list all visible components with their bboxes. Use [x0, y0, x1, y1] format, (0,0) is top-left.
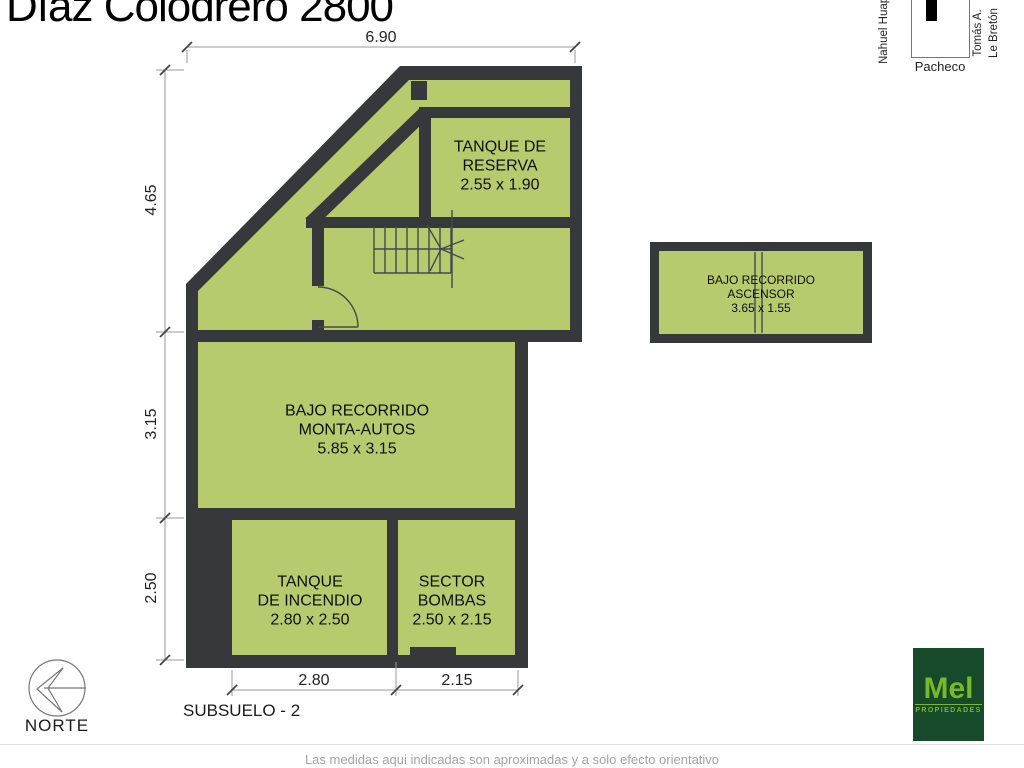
- column: [411, 81, 427, 100]
- room-name-line: RESERVA: [454, 157, 546, 176]
- room-size: 5.85 x 3.15: [285, 440, 429, 459]
- disclaimer-text: Las medidas aqui indicadas son aproximad…: [0, 744, 1024, 767]
- north-label: NORTE: [17, 716, 97, 736]
- door-stop-block: [312, 320, 324, 331]
- north-compass: [29, 660, 86, 716]
- reserva-left-wall: [419, 107, 431, 228]
- agency-logo: Mel PROPIEDADES: [913, 648, 984, 741]
- room-name-line: SECTOR: [412, 573, 491, 592]
- room-size: 2.55 x 1.90: [454, 176, 546, 195]
- room-size: 3.65 x 1.55: [707, 301, 815, 315]
- room-name-line: DE INCENDIO: [258, 592, 363, 611]
- dim-left-a: 4.65: [143, 160, 161, 240]
- bombas-step-notch: [410, 647, 456, 656]
- agency-logo-subtitle: PROPIEDADES: [915, 704, 981, 714]
- room-label-tanque-incendio: TANQUE DE INCENDIO 2.80 x 2.50: [258, 573, 363, 630]
- room-label-monta-autos: BAJO RECORRIDO MONTA-AUTOS 5.85 x 3.15: [285, 402, 429, 459]
- room-name-line: BAJO RECORRIDO: [285, 402, 429, 421]
- reserva-top-wall: [419, 107, 570, 118]
- dim-top: 6.90: [341, 29, 421, 47]
- room-name-line: TANQUE DE: [454, 138, 546, 157]
- stair-hall-wall: [306, 217, 570, 228]
- room-label-ascensor: BAJO RECORRIDO ASCENSOR 3.65 x 1.55: [707, 273, 815, 315]
- floor-level-label: SUBSUELO - 2: [183, 701, 300, 721]
- dim-bottom-b: 2.15: [417, 672, 497, 690]
- room-size: 2.80 x 2.50: [258, 611, 363, 630]
- room-name-line: BAJO RECORRIDO: [707, 273, 815, 287]
- north-arrow-icon: [37, 668, 63, 712]
- room-name-line: TANQUE: [258, 573, 363, 592]
- door-jamb-wall: [312, 217, 324, 286]
- room-label-tanque-reserva: TANQUE DE RESERVA 2.55 x 1.90: [454, 138, 546, 195]
- room-name-line: BOMBAS: [412, 592, 491, 611]
- room-name-line: MONTA-AUTOS: [285, 421, 429, 440]
- upper-zone: [186, 66, 582, 342]
- floorplan-page: Díaz Colodrero 2800 Nahuel Huap Tomás A.…: [0, 0, 1024, 768]
- dim-left-b: 3.15: [143, 384, 161, 464]
- agency-logo-name: Mel: [923, 675, 973, 703]
- room-label-sector-bombas: SECTOR BOMBAS 2.50 x 2.15: [412, 573, 491, 630]
- room-size: 2.50 x 2.15: [412, 611, 491, 630]
- dim-bottom-a: 2.80: [274, 672, 354, 690]
- dim-left-c: 2.50: [143, 548, 161, 628]
- room-name-line: ASCENSOR: [707, 287, 815, 301]
